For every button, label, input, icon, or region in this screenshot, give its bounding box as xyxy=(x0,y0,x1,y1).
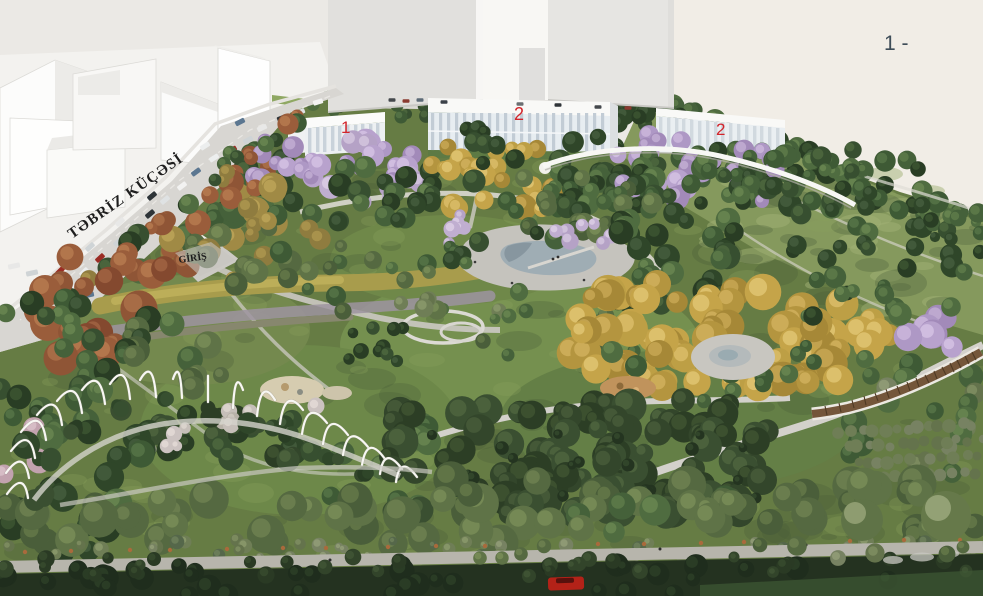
svg-text:1: 1 xyxy=(341,118,350,137)
svg-text:2: 2 xyxy=(514,104,524,124)
svg-text:1 -: 1 - xyxy=(884,32,909,55)
svg-text:2: 2 xyxy=(716,120,725,139)
